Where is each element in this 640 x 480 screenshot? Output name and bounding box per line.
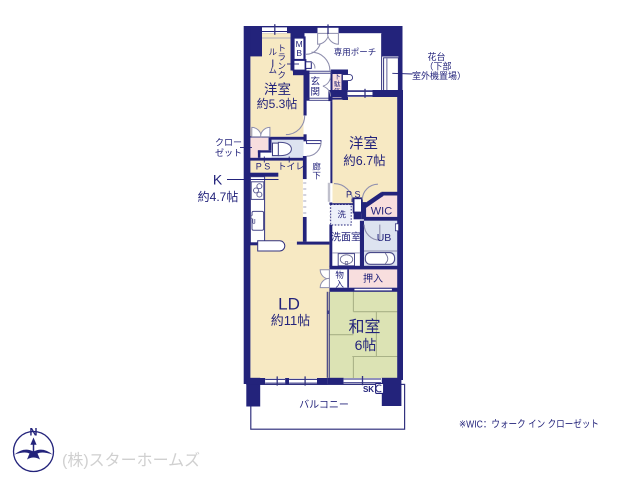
svg-text:約6.7帖: 約6.7帖 [343, 153, 385, 168]
svg-text:関: 関 [310, 87, 320, 98]
svg-text:専用ポーチ: 専用ポーチ [334, 47, 377, 57]
svg-text:ク: ク [278, 70, 287, 80]
svg-text:UB: UB [377, 232, 392, 244]
svg-text:下: 下 [312, 171, 321, 181]
svg-text:ム: ム [269, 65, 278, 75]
svg-text:花台: 花台 [427, 51, 445, 62]
svg-text:ゼット: ゼット [215, 147, 242, 158]
svg-text:入: 入 [335, 279, 344, 289]
svg-text:WIC: WIC [371, 206, 392, 218]
svg-text:ル: ル [269, 47, 278, 57]
svg-text:バルコニー: バルコニー [299, 399, 349, 411]
svg-text:押入: 押入 [363, 272, 383, 285]
svg-text:洗面室: 洗面室 [331, 231, 361, 244]
svg-text:和室: 和室 [348, 318, 380, 336]
svg-text:洗: 洗 [338, 210, 347, 220]
svg-text:PS: PS [256, 162, 273, 172]
svg-text:N: N [30, 427, 38, 439]
svg-text:玄: 玄 [310, 76, 320, 88]
svg-text:約11帖: 約11帖 [271, 313, 311, 328]
svg-text:室外機置場）: 室外機置場） [412, 70, 466, 81]
svg-text:(株)スターホームズ: (株)スターホームズ [62, 452, 200, 470]
svg-text:トイレ: トイレ [277, 162, 304, 172]
svg-text:K: K [213, 172, 223, 188]
svg-text:（下部: （下部 [424, 61, 451, 72]
svg-text:約4.7帖: 約4.7帖 [198, 189, 239, 204]
svg-text:箱: 箱 [334, 87, 341, 96]
svg-text:B: B [296, 48, 302, 58]
svg-text:洋室: 洋室 [349, 136, 378, 153]
svg-text:PS: PS [346, 190, 363, 200]
svg-text:約5.3帖: 約5.3帖 [257, 96, 298, 111]
svg-text:クロー: クロー [215, 138, 242, 148]
svg-text:SK: SK [363, 385, 374, 394]
svg-text:洋室: 洋室 [264, 81, 291, 97]
svg-text:LD: LD [278, 295, 300, 314]
svg-text:※WIC：ウォーク イン クローゼット: ※WIC：ウォーク イン クローゼット [459, 419, 599, 431]
svg-text:下: 下 [334, 73, 341, 81]
svg-text:6帖: 6帖 [355, 337, 377, 353]
svg-text:駄: 駄 [334, 79, 341, 88]
